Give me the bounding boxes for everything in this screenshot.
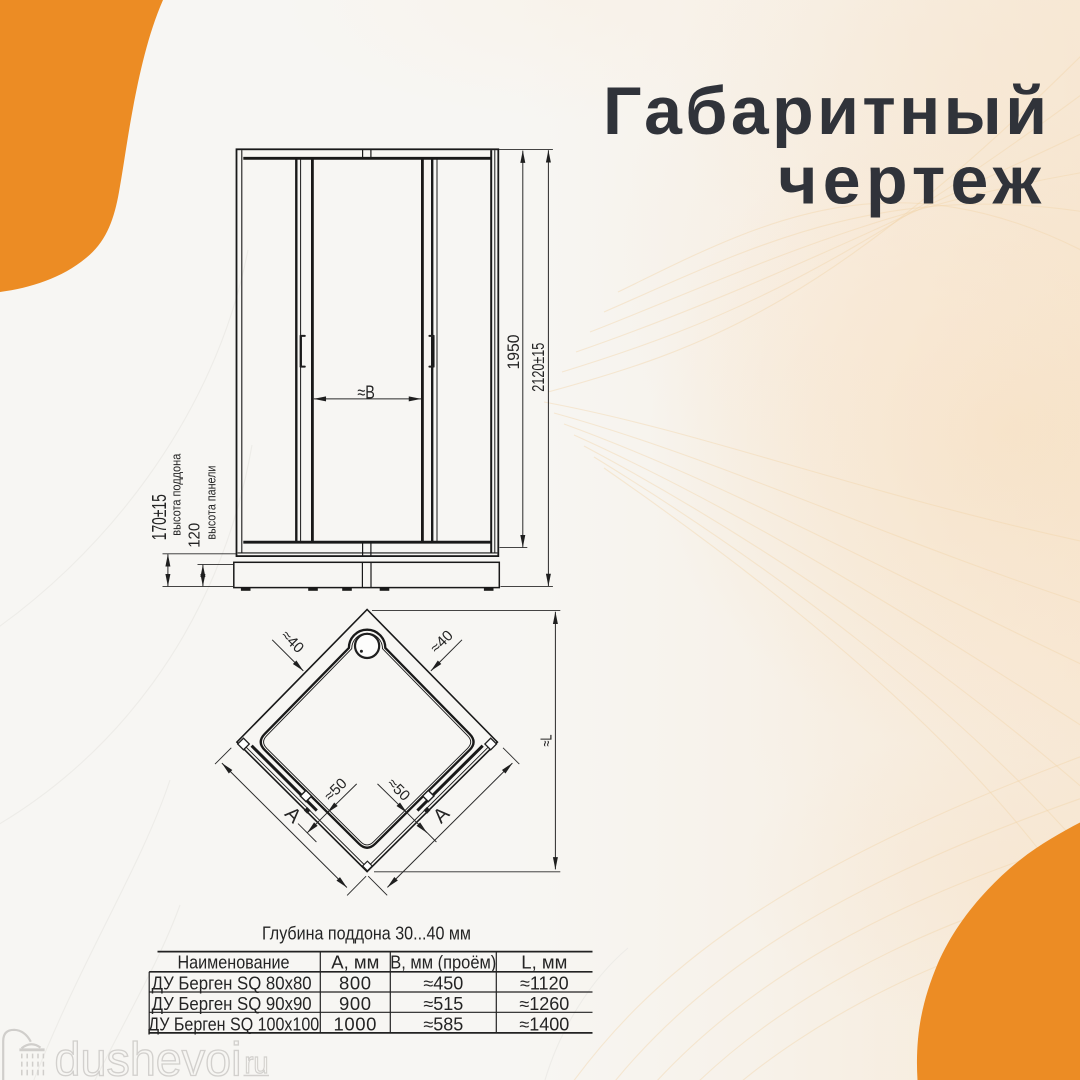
svg-text:Габаритный: Габаритный — [603, 73, 1047, 149]
svg-text:чертеж: чертеж — [778, 143, 1042, 219]
